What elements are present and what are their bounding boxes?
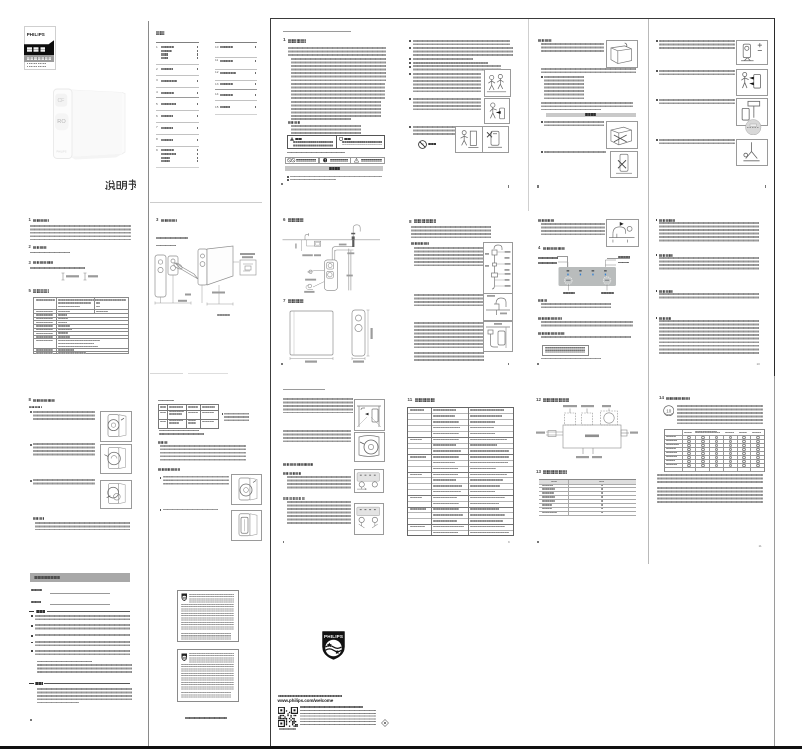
svg-text:10: 10	[666, 408, 672, 413]
svg-text:CF: CF	[57, 98, 64, 104]
svg-text:RO: RO	[57, 119, 66, 125]
svg-text:PHILIPS: PHILIPS	[324, 634, 343, 639]
svg-text:PHILIPS: PHILIPS	[57, 150, 67, 154]
